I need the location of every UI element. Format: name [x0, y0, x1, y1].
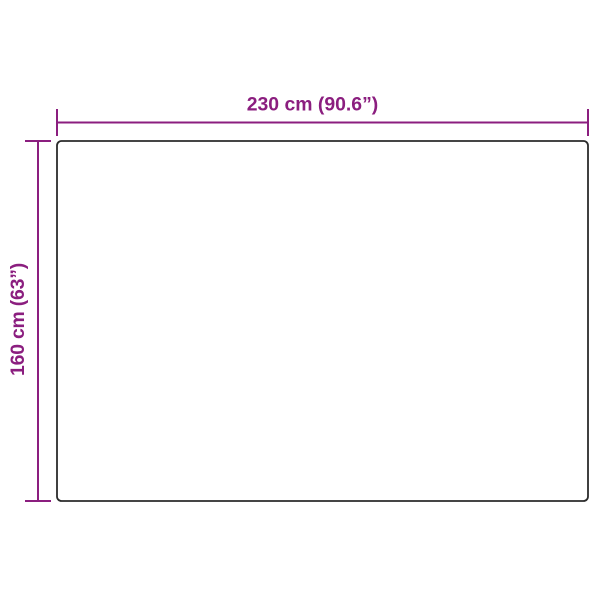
svg-text:230 cm (90.6”): 230 cm (90.6”) — [247, 94, 379, 116]
svg-text:160 cm (63”): 160 cm (63”) — [7, 263, 29, 376]
